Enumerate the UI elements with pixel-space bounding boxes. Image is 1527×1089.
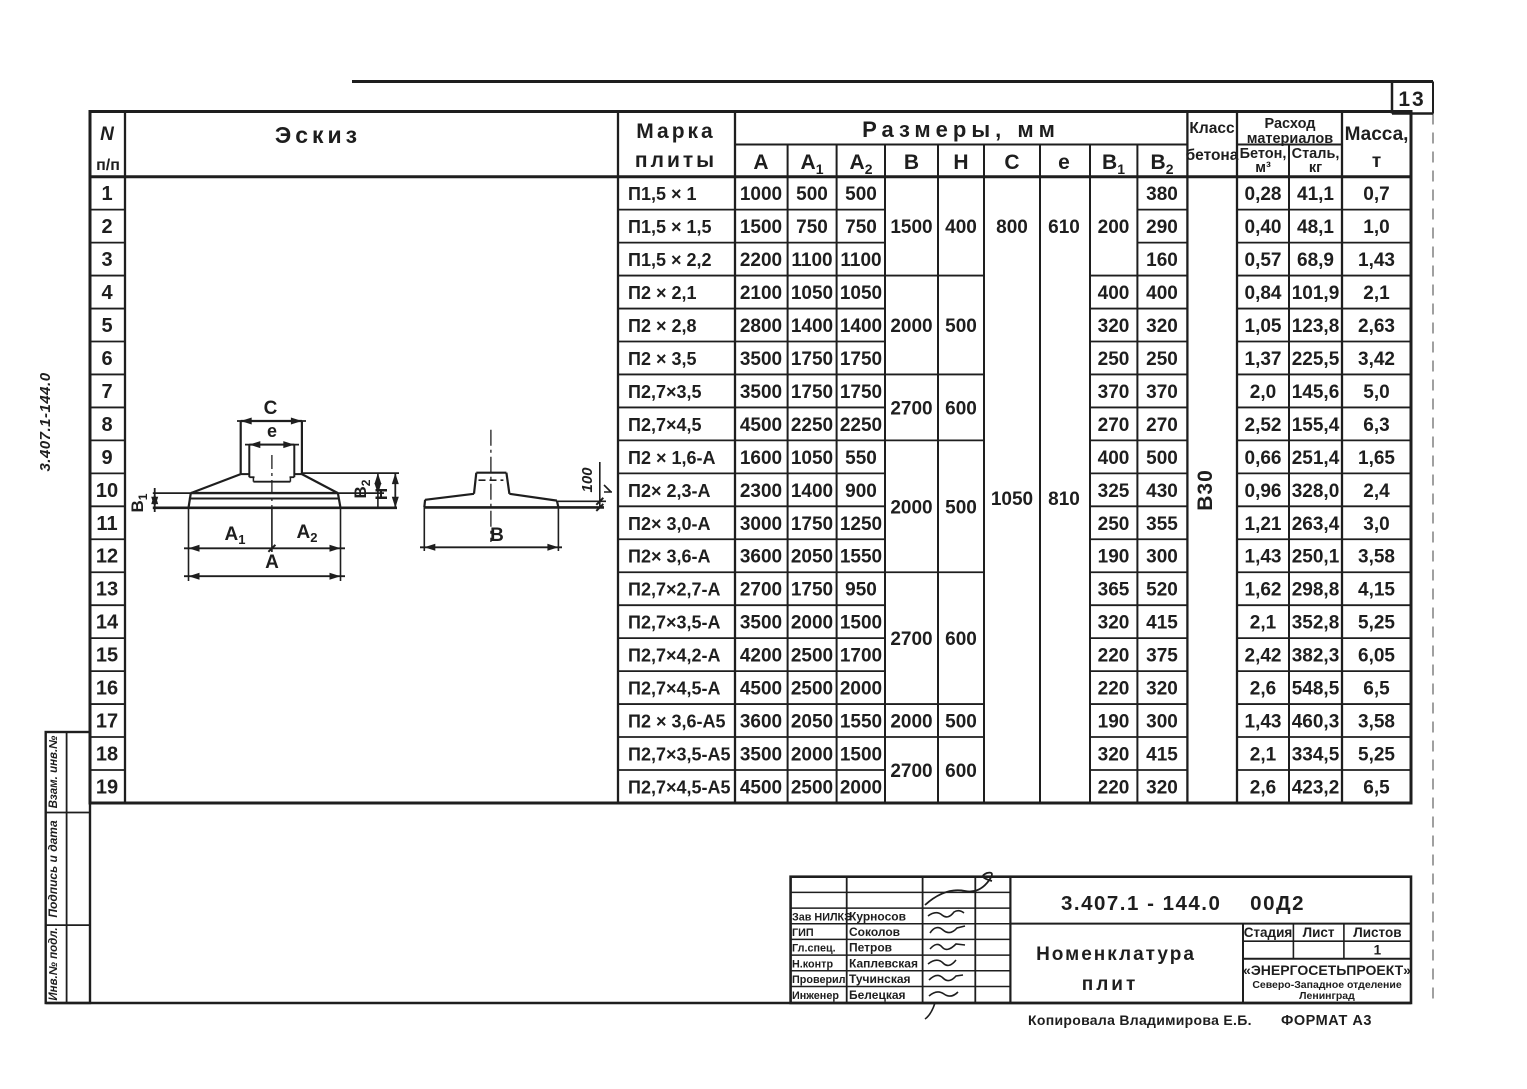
svg-text:П1,5 × 1,5: П1,5 × 1,5: [628, 217, 712, 237]
svg-text:2100: 2100: [740, 283, 782, 304]
svg-text:2,63: 2,63: [1358, 316, 1395, 337]
svg-text:3,0: 3,0: [1363, 514, 1389, 535]
svg-text:Ленинград: Ленинград: [1299, 990, 1355, 1002]
svg-text:430: 430: [1146, 481, 1178, 502]
svg-text:2,42: 2,42: [1245, 646, 1282, 667]
svg-text:415: 415: [1146, 745, 1178, 766]
svg-text:1500: 1500: [890, 217, 932, 238]
svg-text:1,0: 1,0: [1363, 217, 1389, 238]
svg-text:19: 19: [96, 776, 118, 798]
svg-text:Масса,: Масса,: [1345, 124, 1409, 145]
svg-text:В1: В1: [1102, 151, 1125, 177]
svg-text:П1,5 × 1: П1,5 × 1: [628, 184, 696, 204]
svg-text:2300: 2300: [740, 481, 782, 502]
svg-text:1,43: 1,43: [1358, 250, 1395, 271]
svg-text:Расход: Расход: [1265, 116, 1316, 132]
svg-text:355: 355: [1146, 514, 1178, 535]
svg-text:1500: 1500: [840, 613, 882, 634]
svg-text:123,8: 123,8: [1292, 316, 1340, 337]
svg-text:П2,7×2,7-А: П2,7×2,7-А: [628, 580, 721, 600]
svg-text:600: 600: [945, 629, 977, 650]
svg-text:2,1: 2,1: [1250, 613, 1277, 634]
svg-text:П2× 2,3-А: П2× 2,3-А: [628, 481, 710, 501]
svg-text:400: 400: [1098, 283, 1130, 304]
svg-text:Копировала Владимирова Е.Б.: Копировала Владимирова Е.Б.: [1028, 1012, 1252, 1028]
svg-text:2000: 2000: [890, 497, 932, 518]
svg-text:380: 380: [1146, 184, 1178, 205]
svg-text:плит: плит: [1082, 974, 1139, 995]
svg-text:2000: 2000: [890, 712, 932, 733]
svg-text:Марка: Марка: [636, 120, 715, 143]
svg-text:14: 14: [96, 612, 119, 634]
svg-text:11: 11: [96, 513, 117, 535]
svg-text:В2: В2: [351, 479, 373, 498]
svg-text:В1: В1: [128, 493, 150, 512]
svg-text:2000: 2000: [791, 745, 833, 766]
svg-text:375: 375: [1146, 646, 1178, 667]
svg-text:8: 8: [101, 414, 112, 436]
svg-text:С: С: [1004, 151, 1019, 174]
svg-text:1,21: 1,21: [1245, 514, 1282, 535]
svg-text:101,9: 101,9: [1292, 283, 1340, 304]
svg-text:3,58: 3,58: [1358, 712, 1395, 733]
svg-text:1500: 1500: [740, 217, 782, 238]
svg-text:500: 500: [796, 184, 828, 205]
svg-text:А: А: [265, 552, 279, 573]
svg-text:145,6: 145,6: [1292, 382, 1340, 403]
svg-text:100: 100: [579, 467, 596, 493]
svg-text:2,1: 2,1: [1250, 745, 1277, 766]
svg-text:П2,7×4,2-А: П2,7×4,2-А: [628, 646, 721, 666]
svg-text:6,5: 6,5: [1363, 679, 1390, 700]
svg-text:200: 200: [1098, 217, 1130, 238]
svg-text:550: 550: [845, 448, 877, 469]
svg-text:4: 4: [101, 282, 113, 304]
svg-text:2500: 2500: [791, 646, 833, 667]
svg-text:610: 610: [1048, 217, 1080, 238]
svg-text:бетона: бетона: [1186, 147, 1239, 164]
svg-text:263,4: 263,4: [1292, 514, 1340, 535]
svg-text:Стадия: Стадия: [1244, 925, 1293, 940]
svg-text:Эскиз: Эскиз: [275, 122, 361, 148]
svg-text:П2× 3,0-А: П2× 3,0-А: [628, 514, 710, 534]
svg-text:220: 220: [1098, 646, 1130, 667]
svg-text:Петров: Петров: [849, 941, 892, 955]
svg-text:220: 220: [1098, 777, 1130, 798]
svg-text:950: 950: [845, 580, 877, 601]
svg-text:400: 400: [1098, 448, 1130, 469]
svg-text:3.407.1-144.0: 3.407.1-144.0: [37, 372, 54, 471]
svg-text:3000: 3000: [740, 514, 782, 535]
svg-text:п/п: п/п: [96, 157, 120, 174]
svg-text:600: 600: [945, 398, 977, 419]
svg-text:П2 × 3,5: П2 × 3,5: [628, 349, 696, 369]
svg-text:П2,7×4,5-А5: П2,7×4,5-А5: [628, 777, 731, 797]
svg-text:е: е: [1058, 151, 1070, 174]
svg-text:2,1: 2,1: [1363, 283, 1390, 304]
svg-text:500: 500: [945, 316, 977, 337]
svg-text:2000: 2000: [840, 679, 882, 700]
svg-text:2,6: 2,6: [1250, 777, 1276, 798]
svg-text:4200: 4200: [740, 646, 782, 667]
svg-text:П1,5 × 2,2: П1,5 × 2,2: [628, 250, 712, 270]
svg-text:320: 320: [1146, 316, 1178, 337]
svg-text:П2 × 3,6-А5: П2 × 3,6-А5: [628, 712, 726, 732]
svg-text:3.407.1 - 144.0 00Д2: 3.407.1 - 144.0 00Д2: [1061, 892, 1305, 915]
svg-text:П2 × 2,8: П2 × 2,8: [628, 316, 696, 336]
svg-text:750: 750: [796, 217, 828, 238]
svg-text:10: 10: [96, 480, 118, 502]
svg-text:5,25: 5,25: [1358, 745, 1395, 766]
svg-text:Инв.№ подл.: Инв.№ подл.: [48, 927, 60, 1000]
svg-text:3500: 3500: [740, 613, 782, 634]
svg-text:1750: 1750: [791, 382, 833, 403]
svg-text:320: 320: [1098, 613, 1130, 634]
svg-text:3600: 3600: [740, 712, 782, 733]
svg-text:328,0: 328,0: [1292, 481, 1340, 502]
svg-text:3: 3: [101, 249, 112, 271]
svg-text:1,65: 1,65: [1358, 448, 1395, 469]
svg-text:Взам. инв.№: Взам. инв.№: [48, 736, 60, 809]
svg-text:1550: 1550: [840, 712, 882, 733]
svg-text:Номенклатура: Номенклатура: [1036, 944, 1196, 965]
svg-text:500: 500: [945, 712, 977, 733]
svg-text:Соколов: Соколов: [849, 925, 900, 939]
svg-text:2,6: 2,6: [1250, 679, 1276, 700]
svg-text:13: 13: [96, 579, 118, 601]
svg-text:600: 600: [945, 761, 977, 782]
svg-text:500: 500: [845, 184, 877, 205]
svg-text:А2: А2: [850, 151, 873, 177]
svg-text:3,58: 3,58: [1358, 547, 1395, 568]
svg-text:320: 320: [1098, 316, 1130, 337]
svg-text:1100: 1100: [840, 250, 881, 271]
svg-text:Каплевская: Каплевская: [849, 956, 918, 970]
svg-text:3600: 3600: [740, 547, 782, 568]
svg-text:ГИП: ГИП: [792, 927, 814, 939]
svg-text:400: 400: [1146, 283, 1178, 304]
svg-text:2,52: 2,52: [1245, 415, 1282, 436]
svg-text:1000: 1000: [740, 184, 782, 205]
svg-text:2700: 2700: [740, 580, 782, 601]
svg-text:750: 750: [845, 217, 877, 238]
svg-text:68,9: 68,9: [1297, 250, 1334, 271]
svg-text:А: А: [753, 151, 768, 174]
svg-text:5,0: 5,0: [1363, 382, 1389, 403]
svg-text:12: 12: [96, 546, 118, 568]
svg-text:3500: 3500: [740, 349, 782, 370]
svg-text:810: 810: [1048, 489, 1080, 510]
svg-text:17: 17: [96, 711, 118, 733]
svg-text:1250: 1250: [840, 514, 882, 535]
svg-text:0,66: 0,66: [1245, 448, 1282, 469]
svg-text:370: 370: [1146, 382, 1178, 403]
svg-text:2000: 2000: [791, 613, 833, 634]
svg-text:41,1: 41,1: [1297, 184, 1334, 205]
svg-text:250,1: 250,1: [1292, 547, 1340, 568]
svg-text:3500: 3500: [740, 382, 782, 403]
svg-text:0,84: 0,84: [1245, 283, 1282, 304]
svg-text:2200: 2200: [740, 250, 782, 271]
svg-text:1600: 1600: [740, 448, 782, 469]
svg-text:N: N: [100, 124, 115, 145]
svg-text:520: 520: [1146, 580, 1178, 601]
svg-text:1750: 1750: [791, 514, 833, 535]
svg-text:382,3: 382,3: [1292, 646, 1340, 667]
svg-text:0,7: 0,7: [1363, 184, 1389, 205]
svg-text:Инженер: Инженер: [792, 990, 839, 1002]
svg-text:1550: 1550: [840, 547, 882, 568]
svg-text:Класс: Класс: [1189, 120, 1235, 137]
svg-text:15: 15: [96, 645, 118, 667]
svg-text:1750: 1750: [840, 349, 882, 370]
svg-text:2700: 2700: [890, 629, 932, 650]
svg-text:П2 × 2,1: П2 × 2,1: [628, 283, 696, 303]
svg-text:2000: 2000: [890, 316, 932, 337]
svg-text:3,42: 3,42: [1358, 349, 1395, 370]
svg-text:548,5: 548,5: [1292, 679, 1340, 700]
svg-text:334,5: 334,5: [1292, 745, 1340, 766]
svg-text:П2,7×3,5-А5: П2,7×3,5-А5: [628, 745, 731, 765]
svg-text:ФОРМАТ А3: ФОРМАТ А3: [1281, 1013, 1372, 1029]
svg-text:А1: А1: [225, 524, 246, 547]
svg-text:Гл.спец.: Гл.спец.: [792, 943, 836, 955]
svg-text:2,4: 2,4: [1363, 481, 1390, 502]
svg-text:Н.контр: Н.контр: [792, 958, 833, 970]
svg-text:460,3: 460,3: [1292, 712, 1340, 733]
svg-text:1400: 1400: [791, 316, 833, 337]
svg-text:2250: 2250: [791, 415, 833, 436]
svg-text:300: 300: [1146, 547, 1178, 568]
svg-text:Подпись и дата: Подпись и дата: [46, 820, 60, 918]
svg-text:Зав НИЛКЭ: Зав НИЛКЭ: [792, 911, 852, 923]
svg-text:0,96: 0,96: [1245, 481, 1282, 502]
svg-text:1,43: 1,43: [1245, 547, 1282, 568]
svg-text:В: В: [904, 151, 919, 174]
svg-text:П2,7×4,5: П2,7×4,5: [628, 415, 702, 435]
svg-text:2500: 2500: [791, 777, 833, 798]
svg-text:1: 1: [1374, 943, 1382, 958]
svg-text:1750: 1750: [791, 580, 833, 601]
svg-text:2050: 2050: [791, 547, 833, 568]
svg-text:плиты: плиты: [635, 149, 717, 172]
svg-text:В: В: [490, 525, 504, 546]
svg-text:365: 365: [1098, 580, 1130, 601]
svg-text:1700: 1700: [840, 646, 882, 667]
svg-text:2250: 2250: [840, 415, 882, 436]
svg-text:4500: 4500: [740, 679, 782, 700]
svg-text:415: 415: [1146, 613, 1178, 634]
svg-text:1750: 1750: [840, 382, 882, 403]
svg-text:П2,7×3,5: П2,7×3,5: [628, 382, 702, 402]
svg-text:5: 5: [101, 315, 112, 337]
svg-text:1: 1: [101, 183, 112, 205]
svg-text:4,15: 4,15: [1358, 580, 1395, 601]
svg-text:190: 190: [1098, 547, 1130, 568]
svg-text:т: т: [1372, 151, 1381, 172]
svg-text:«ЭНЕРГОСЕТЬПРОЕКТ»: «ЭНЕРГОСЕТЬПРОЕКТ»: [1243, 962, 1411, 978]
svg-text:2: 2: [101, 216, 112, 238]
svg-text:Н: Н: [372, 488, 391, 500]
svg-text:кг: кг: [1309, 160, 1322, 176]
svg-text:325: 325: [1098, 481, 1130, 502]
svg-text:П2,7×3,5-А: П2,7×3,5-А: [628, 613, 721, 633]
svg-text:270: 270: [1146, 415, 1178, 436]
svg-text:13: 13: [1398, 88, 1425, 111]
svg-text:320: 320: [1146, 679, 1178, 700]
svg-text:В30: В30: [1194, 469, 1217, 511]
svg-text:500: 500: [945, 497, 977, 518]
svg-text:Тучинская: Тучинская: [849, 972, 911, 986]
svg-text:Н: Н: [953, 151, 968, 174]
svg-text:2050: 2050: [791, 712, 833, 733]
svg-text:1050: 1050: [791, 283, 833, 304]
svg-text:250: 250: [1098, 514, 1130, 535]
svg-text:1,62: 1,62: [1245, 580, 1282, 601]
svg-text:900: 900: [845, 481, 877, 502]
svg-text:1,05: 1,05: [1245, 316, 1282, 337]
svg-text:1100: 1100: [791, 250, 832, 271]
svg-text:А2: А2: [297, 522, 318, 545]
svg-text:7: 7: [101, 381, 112, 403]
svg-text:500: 500: [1146, 448, 1178, 469]
svg-text:Листов: Листов: [1353, 925, 1401, 940]
svg-text:1400: 1400: [791, 481, 833, 502]
svg-text:П2,7×4,5-А: П2,7×4,5-А: [628, 679, 721, 699]
svg-text:5,25: 5,25: [1358, 613, 1395, 634]
svg-text:Белецкая: Белецкая: [849, 988, 906, 1002]
svg-text:190: 190: [1098, 712, 1130, 733]
svg-text:0,28: 0,28: [1245, 184, 1282, 205]
svg-text:П2 × 1,6-А: П2 × 1,6-А: [628, 448, 715, 468]
svg-text:материалов: материалов: [1247, 131, 1333, 147]
svg-text:1500: 1500: [840, 745, 882, 766]
svg-text:320: 320: [1098, 745, 1130, 766]
svg-text:Проверил: Проверил: [792, 974, 846, 986]
svg-text:6,05: 6,05: [1358, 646, 1395, 667]
svg-text:3500: 3500: [740, 745, 782, 766]
svg-text:А1: А1: [801, 151, 824, 177]
svg-text:300: 300: [1146, 712, 1178, 733]
svg-text:1050: 1050: [791, 448, 833, 469]
svg-text:1,37: 1,37: [1245, 349, 1282, 370]
svg-text:320: 320: [1146, 777, 1178, 798]
svg-text:160: 160: [1146, 250, 1178, 271]
svg-text:0,57: 0,57: [1245, 250, 1282, 271]
svg-text:С: С: [264, 398, 278, 419]
svg-text:250: 250: [1146, 349, 1178, 370]
svg-text:1400: 1400: [840, 316, 882, 337]
svg-text:352,8: 352,8: [1292, 613, 1340, 634]
svg-text:1050: 1050: [991, 489, 1033, 510]
svg-text:Курносов: Курносов: [849, 909, 906, 923]
svg-text:4500: 4500: [740, 415, 782, 436]
svg-text:298,8: 298,8: [1292, 580, 1340, 601]
svg-text:800: 800: [996, 217, 1028, 238]
svg-text:16: 16: [96, 678, 118, 700]
svg-text:423,2: 423,2: [1292, 777, 1340, 798]
svg-text:250: 250: [1098, 349, 1130, 370]
svg-text:2800: 2800: [740, 316, 782, 337]
svg-text:4500: 4500: [740, 777, 782, 798]
svg-text:2700: 2700: [890, 761, 932, 782]
svg-text:1750: 1750: [791, 349, 833, 370]
svg-text:400: 400: [945, 217, 977, 238]
svg-text:270: 270: [1098, 415, 1130, 436]
svg-text:225,5: 225,5: [1292, 349, 1340, 370]
svg-text:6,5: 6,5: [1363, 777, 1390, 798]
svg-text:251,4: 251,4: [1292, 448, 1340, 469]
svg-text:2700: 2700: [890, 398, 932, 419]
svg-text:Размеры, мм: Размеры, мм: [862, 117, 1060, 142]
svg-text:290: 290: [1146, 217, 1178, 238]
svg-text:м³: м³: [1255, 160, 1271, 176]
svg-text:18: 18: [96, 744, 118, 766]
svg-text:155,4: 155,4: [1292, 415, 1340, 436]
svg-text:48,1: 48,1: [1297, 217, 1334, 238]
svg-text:2000: 2000: [840, 777, 882, 798]
svg-text:6,3: 6,3: [1363, 415, 1389, 436]
svg-text:2500: 2500: [791, 679, 833, 700]
svg-text:П2× 3,6-А: П2× 3,6-А: [628, 547, 710, 567]
svg-text:е: е: [267, 421, 277, 441]
svg-text:6: 6: [101, 348, 112, 370]
svg-text:0,40: 0,40: [1245, 217, 1282, 238]
svg-text:Лист: Лист: [1303, 925, 1335, 940]
svg-text:220: 220: [1098, 679, 1130, 700]
svg-text:9: 9: [101, 447, 112, 469]
svg-text:В2: В2: [1151, 151, 1174, 177]
svg-text:370: 370: [1098, 382, 1130, 403]
svg-text:2,0: 2,0: [1250, 382, 1276, 403]
svg-text:1,43: 1,43: [1245, 712, 1282, 733]
svg-text:1050: 1050: [840, 283, 882, 304]
